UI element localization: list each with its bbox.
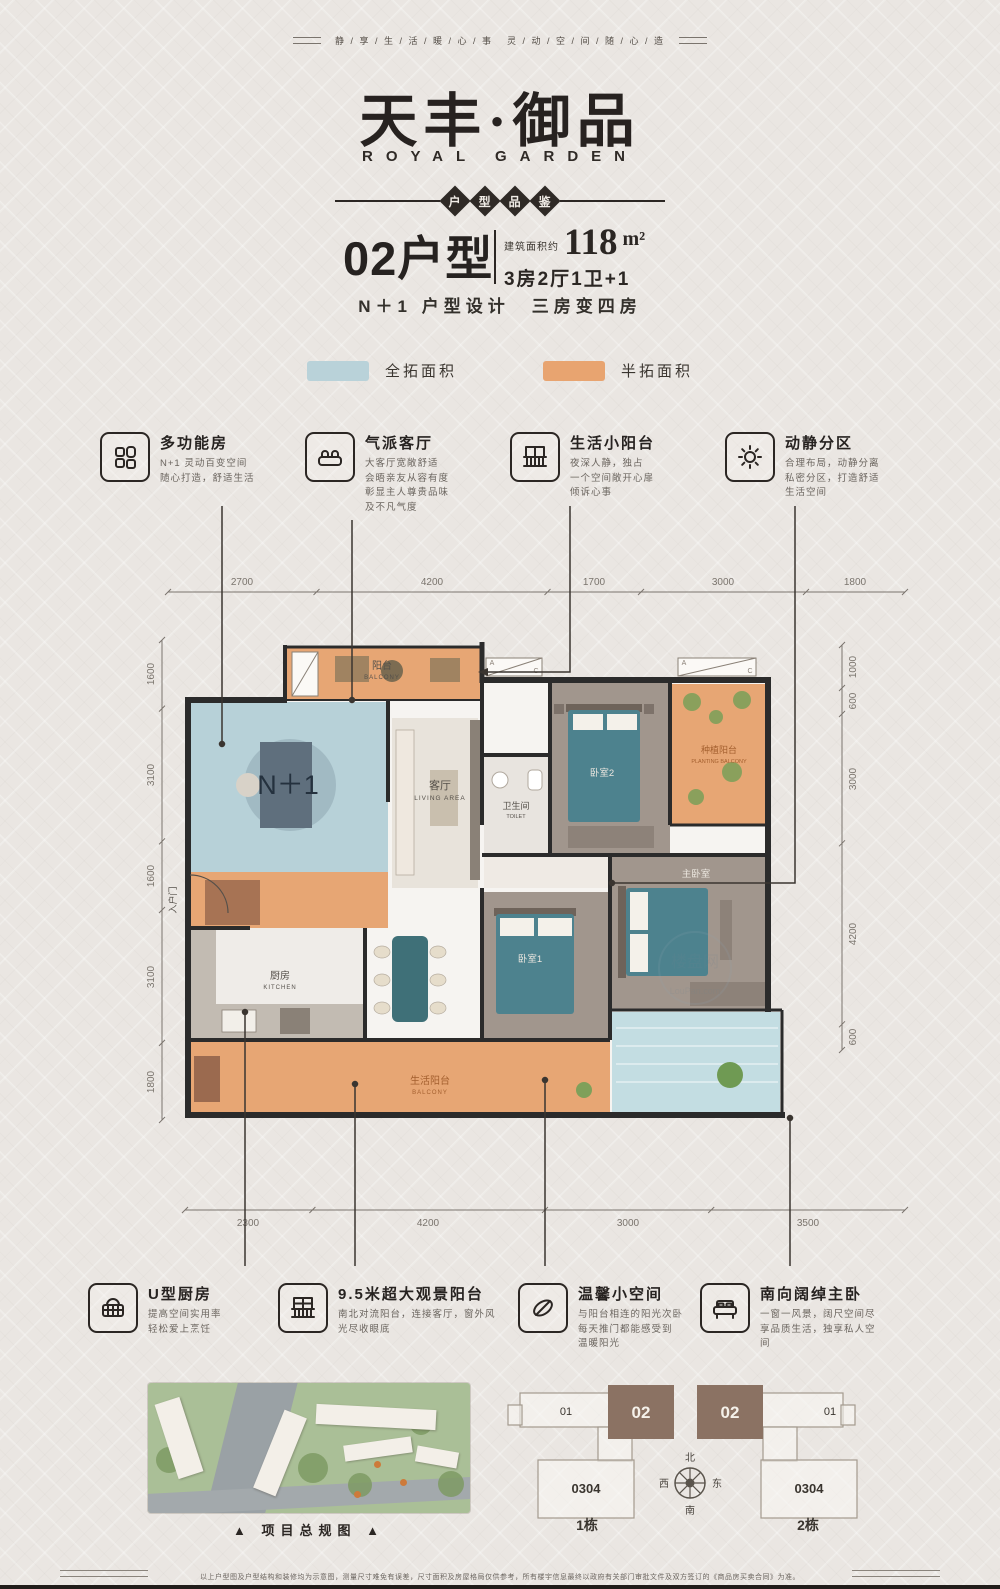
compass-east: 东 xyxy=(712,1477,722,1490)
bottom-bar xyxy=(0,1585,1000,1589)
slogan-flourish-right xyxy=(679,37,707,44)
badge-line-left xyxy=(335,200,440,202)
site-building xyxy=(415,1445,459,1468)
room-label-planting-en: PLANTING BALCONY xyxy=(691,759,747,765)
dim-bottom: 3500 xyxy=(797,1218,820,1229)
room-label-life-balcony-en: BALCONY xyxy=(412,1090,448,1096)
feature-title: U型厨房 xyxy=(148,1283,222,1304)
feature-desc: 大客厅宽敞舒适 会晤亲友从容有度 彰显主人尊贵品味 及不凡气度 xyxy=(365,457,449,516)
unit0304-label: 0304 xyxy=(795,1481,825,1496)
feature-title: 温馨小空间 xyxy=(578,1283,683,1304)
legend-label-full: 全拓面积 xyxy=(385,360,457,381)
slogan-right: 灵 / 动 / 空 / 间 / 随 / 心 / 造 xyxy=(507,34,665,47)
dim-bottom: 2300 xyxy=(237,1218,260,1229)
dim-left: 3100 xyxy=(146,965,157,988)
badge-line-right xyxy=(560,200,665,202)
badge-diamond: 鉴 xyxy=(529,185,560,216)
feature-cozy-space: 温馨小空间 与阳台相连的阳光次卧 每天推门都能感受到 温暖阳光 xyxy=(518,1283,718,1352)
ac-label-c: C xyxy=(747,668,752,675)
compass-west: 西 xyxy=(659,1479,669,1490)
dim-left: 1800 xyxy=(146,1070,157,1093)
room-label-entry: 入户门 xyxy=(167,886,178,913)
unit-design-line: N＋1 户型设计 三房变四房 xyxy=(0,292,1000,317)
site-dot xyxy=(400,1479,407,1486)
unit-code: 02户型 xyxy=(343,220,493,289)
ac-label-a: A xyxy=(490,660,495,667)
badge-diamond: 品 xyxy=(499,185,530,216)
dim-left: 3100 xyxy=(146,763,157,786)
watermark-en: LouPan.com xyxy=(670,986,721,996)
dim-top: 2700 xyxy=(231,577,254,588)
dim-right: 600 xyxy=(848,692,859,709)
badge-char: 型 xyxy=(479,192,491,209)
badge-char: 鉴 xyxy=(539,192,551,209)
site-dot xyxy=(354,1491,361,1498)
compass-north: 北 xyxy=(685,1452,695,1464)
room-label-living: 客厅 xyxy=(429,778,451,792)
header-slogan: 静 / 享 / 生 / 活 / 暖 / 心 / 事 灵 / 动 / 空 / 间 … xyxy=(0,34,1000,47)
basket-icon xyxy=(88,1283,138,1333)
room-label-kitchen: 厨房 xyxy=(270,969,290,982)
dim-top: 1800 xyxy=(844,577,867,588)
unit01-label: 01 xyxy=(824,1406,836,1418)
room-label-living-en: LIVING AREA xyxy=(414,795,465,802)
badge-diamond: 型 xyxy=(469,185,500,216)
badge-diamond: 户 xyxy=(439,185,470,216)
brand-subtitle: ROYAL GARDEN xyxy=(0,148,1000,165)
leaf-icon xyxy=(518,1283,568,1333)
building-2-name: 2栋 xyxy=(797,1517,819,1533)
legend-item-full: 全拓面积 xyxy=(307,360,457,381)
room-label-planting: 种植阳台 xyxy=(701,744,737,755)
feature-desc: 提高空间实用率 轻松爱上烹饪 xyxy=(148,1308,222,1337)
legend-swatch-half xyxy=(543,361,605,381)
unit-separator xyxy=(494,230,496,284)
window-icon xyxy=(278,1283,328,1333)
feature-title: 生活小阳台 xyxy=(570,432,655,453)
feature-zoning: 动静分区 合理布局，动静分离 私密分区，打造舒适 生活空间 xyxy=(725,432,925,501)
feature-desc: 南北对流阳台，连接客厅，窗外风 光尽收眼底 xyxy=(338,1308,496,1337)
railing-icon xyxy=(510,432,560,482)
bed-icon xyxy=(700,1283,750,1333)
dim-left: 1600 xyxy=(146,662,157,685)
building-2-outline xyxy=(753,1393,857,1518)
room-label-balcony-en: BALCONY xyxy=(364,675,400,681)
feature-desc: 一窗一风景，阔尺空间尽 享品质生活，独享私人空 间 xyxy=(760,1308,876,1352)
floor-plan: 阳台 BALCONY N＋1 入户门 客厅 LIVING AREA 卫生间 TO… xyxy=(130,570,920,1235)
site-building xyxy=(343,1436,413,1461)
unit01-label: 01 xyxy=(560,1406,572,1418)
compass-south: 南 xyxy=(685,1504,695,1517)
unit02-label: 02 xyxy=(721,1403,740,1422)
room-label-balcony: 阳台 xyxy=(372,659,392,672)
building-key-plans: 02 02 01 01 0304 0304 1栋 2栋 北 南 西 东 xyxy=(500,1365,895,1537)
unit-area: 建筑面积约 118 m² xyxy=(504,224,645,261)
area-prefix: 建筑面积约 xyxy=(504,238,559,261)
feature-desc: 夜深人静，独占 一个空间敞开心扉 倾诉心事 xyxy=(570,457,655,501)
room-label-kitchen-en: KITCHEN xyxy=(263,985,296,991)
unit0304-label: 0304 xyxy=(572,1481,602,1496)
room-label-master: 主卧室 xyxy=(682,868,711,880)
dim-right: 1000 xyxy=(848,655,859,678)
footer-disclaimer: 以上户型图及户型结构和装修均为示意图，测量尺寸难免有误差，尺寸面积及房屋格局仅供… xyxy=(170,1572,830,1582)
feature-desc: 合理布局，动静分离 私密分区，打造舒适 生活空间 xyxy=(785,457,880,501)
dim-top: 3000 xyxy=(712,577,735,588)
feature-title: 南向阔绰主卧 xyxy=(760,1283,876,1304)
ac-label-c: C xyxy=(533,668,538,675)
compass-icon: 北 南 西 东 xyxy=(659,1452,722,1517)
dim-bottom: 3000 xyxy=(617,1218,640,1229)
badge-char: 户 xyxy=(449,192,461,209)
slogan-flourish-left xyxy=(293,37,321,44)
dim-right: 600 xyxy=(848,1028,859,1045)
site-dot xyxy=(374,1461,381,1468)
room-label-bath: 卫生间 xyxy=(502,800,529,811)
dim-right: 3000 xyxy=(848,767,859,790)
feature-u-kitchen: U型厨房 提高空间实用率 轻松爱上烹饪 xyxy=(88,1283,288,1337)
dim-right: 4200 xyxy=(848,922,859,945)
brand-title: 天丰·御品 xyxy=(0,74,1000,158)
site-green xyxy=(298,1453,328,1483)
legend-swatch-full xyxy=(307,361,369,381)
badge-char: 品 xyxy=(509,192,521,209)
footer-flourish-right xyxy=(852,1570,940,1577)
site-plan-caption: ▲ 项目总规图 ▲ xyxy=(148,1520,470,1539)
slogan-left: 静 / 享 / 生 / 活 / 暖 / 心 / 事 xyxy=(335,34,493,47)
ac-label-a: A xyxy=(682,660,687,667)
room-label-nplus: N＋1 xyxy=(257,770,319,800)
sofa-icon xyxy=(305,432,355,482)
area-value: 118 xyxy=(564,224,617,261)
feature-title: 9.5米超大观景阳台 xyxy=(338,1283,496,1304)
area-unit: m² xyxy=(622,228,645,261)
grid-icon xyxy=(100,432,150,482)
room-label-bath-en: TOILET xyxy=(506,814,526,820)
sun-icon xyxy=(725,432,775,482)
watermark-cn: 楼盘网 xyxy=(671,952,719,971)
feature-title: 多功能房 xyxy=(160,432,255,453)
room-label-bed1: 卧室1 xyxy=(518,953,542,965)
dim-top: 4200 xyxy=(421,577,444,588)
unit-rooms: 3房2厅1卫+1 xyxy=(504,264,630,291)
legend-label-half: 半拓面积 xyxy=(621,360,693,381)
legend-item-half: 半拓面积 xyxy=(543,360,693,381)
dim-bottom: 4200 xyxy=(417,1218,440,1229)
site-plan-image xyxy=(148,1383,470,1513)
feature-life-balcony: 生活小阳台 夜深人静，独占 一个空间敞开心扉 倾诉心事 xyxy=(510,432,710,501)
footer-flourish-left xyxy=(60,1570,148,1577)
feature-grand-living-room: 气派客厅 大客厅宽敞舒适 会晤亲友从容有度 彰显主人尊贵品味 及不凡气度 xyxy=(305,432,505,516)
feature-multifunction-room: 多功能房 N+1 灵动百变空间 随心打造，舒适生活 xyxy=(100,432,300,486)
badge-divider: 户 型 品 鉴 xyxy=(0,190,1000,212)
feature-title: 气派客厅 xyxy=(365,432,449,453)
feature-view-balcony: 9.5米超大观景阳台 南北对流阳台，连接客厅，窗外风 光尽收眼底 xyxy=(278,1283,513,1337)
poster-page: 静 / 享 / 生 / 活 / 暖 / 心 / 事 灵 / 动 / 空 / 间 … xyxy=(0,0,1000,1589)
dim-left: 1600 xyxy=(146,864,157,887)
feature-desc: N+1 灵动百变空间 随心打造，舒适生活 xyxy=(160,457,255,486)
building-1-name: 1栋 xyxy=(576,1517,598,1533)
room-label-life-balcony: 生活阳台 xyxy=(410,1074,450,1087)
site-green xyxy=(438,1471,464,1497)
dim-top: 1700 xyxy=(583,577,606,588)
feature-master-bedroom: 南向阔绰主卧 一窗一风景，阔尺空间尽 享品质生活，独享私人空 间 xyxy=(700,1283,900,1352)
room-label-bed2: 卧室2 xyxy=(590,767,614,779)
site-building xyxy=(316,1404,437,1430)
feature-title: 动静分区 xyxy=(785,432,880,453)
unit02-label: 02 xyxy=(632,1403,651,1422)
feature-desc: 与阳台相连的阳光次卧 每天推门都能感受到 温暖阳光 xyxy=(578,1308,683,1352)
plan-legend: 全拓面积 半拓面积 xyxy=(0,360,1000,381)
